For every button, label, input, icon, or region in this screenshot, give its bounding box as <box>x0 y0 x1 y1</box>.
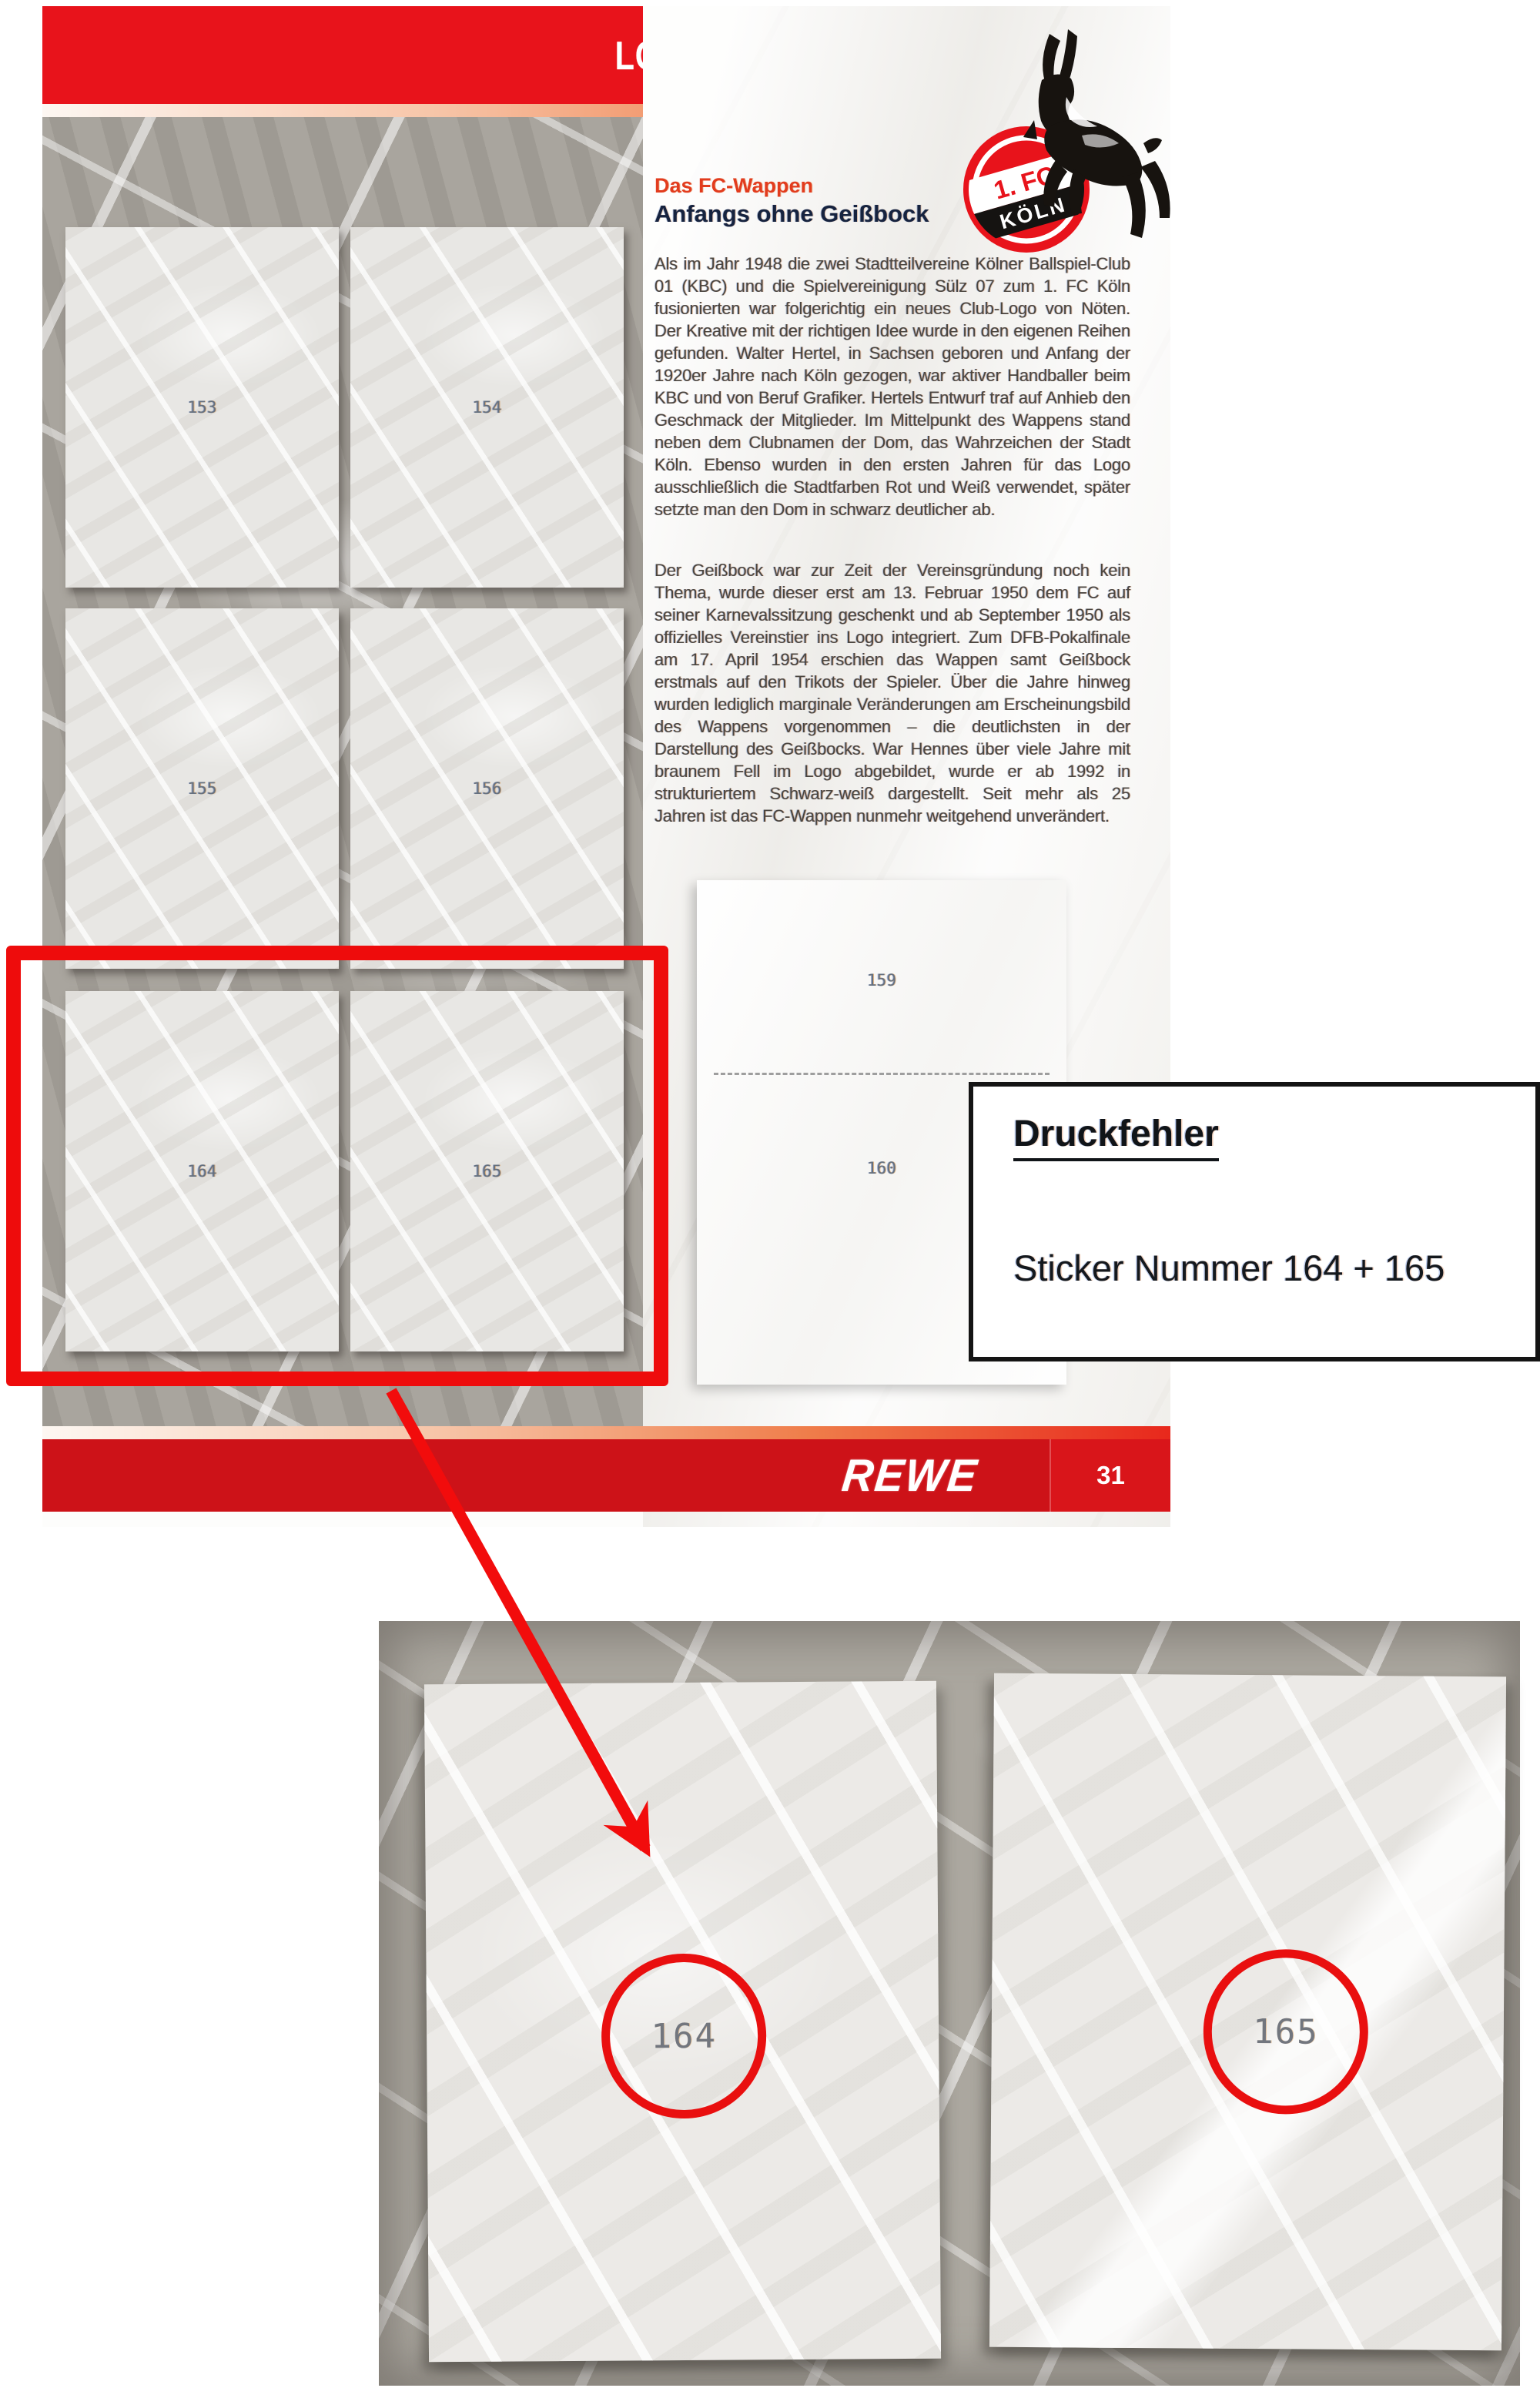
article-paragraph-2: Der Geißbock war zur Zeit der Vereinsgrü… <box>654 559 1130 827</box>
footer-accent-stripe <box>42 1426 1170 1439</box>
sticker-slot: 155 <box>65 608 339 969</box>
page-number: 31 <box>1096 1461 1125 1490</box>
article-kicker: Das FC-Wappen <box>654 174 813 198</box>
detail-sticker-right: 165 <box>989 1673 1506 2351</box>
sticker-slot: 153 <box>65 227 339 588</box>
detail-sticker-left: 164 <box>424 1681 941 2363</box>
detail-photo: 164 165 <box>379 1621 1520 2386</box>
error-highlight-box <box>6 946 668 1386</box>
circle-annotation-left: 164 <box>601 1953 766 2118</box>
insert-divider <box>714 1073 1050 1075</box>
circle-annotation-right: 165 <box>1203 1949 1368 2115</box>
article-headline: Anfangs ohne Geißbock <box>654 200 929 228</box>
page-canvas: LOGO-ENTWICKLUNG 153 154 155 156 164 165… <box>0 0 1540 2388</box>
sticker-slot: 156 <box>350 608 624 969</box>
sticker-number: 153 <box>188 398 217 417</box>
rewe-logo: REWE <box>839 1449 980 1501</box>
detail-number-right: 165 <box>1253 2012 1319 2052</box>
insert-sticker-number-top: 159 <box>697 971 1066 990</box>
detail-number-left: 164 <box>651 2016 717 2056</box>
article-paragraph-1: Als im Jahr 1948 die zwei Stadtteilverei… <box>654 253 1130 521</box>
goat-badge-icon: 1. FC KÖLN <box>920 12 1178 270</box>
club-logo: 1. FC KÖLN <box>920 12 1178 270</box>
footer-banner: REWE 31 <box>42 1439 1170 1512</box>
sticker-number: 155 <box>188 779 217 798</box>
page-number-box: 31 <box>1050 1439 1170 1512</box>
error-note-box: Druckfehler Sticker Nummer 164 + 165 <box>969 1082 1540 1361</box>
error-note-title: Druckfehler <box>1013 1113 1219 1161</box>
sticker-slot: 154 <box>350 227 624 588</box>
error-note-text: Sticker Nummer 164 + 165 <box>1013 1247 1445 1289</box>
sticker-number: 154 <box>473 398 502 417</box>
sticker-number: 156 <box>473 779 502 798</box>
